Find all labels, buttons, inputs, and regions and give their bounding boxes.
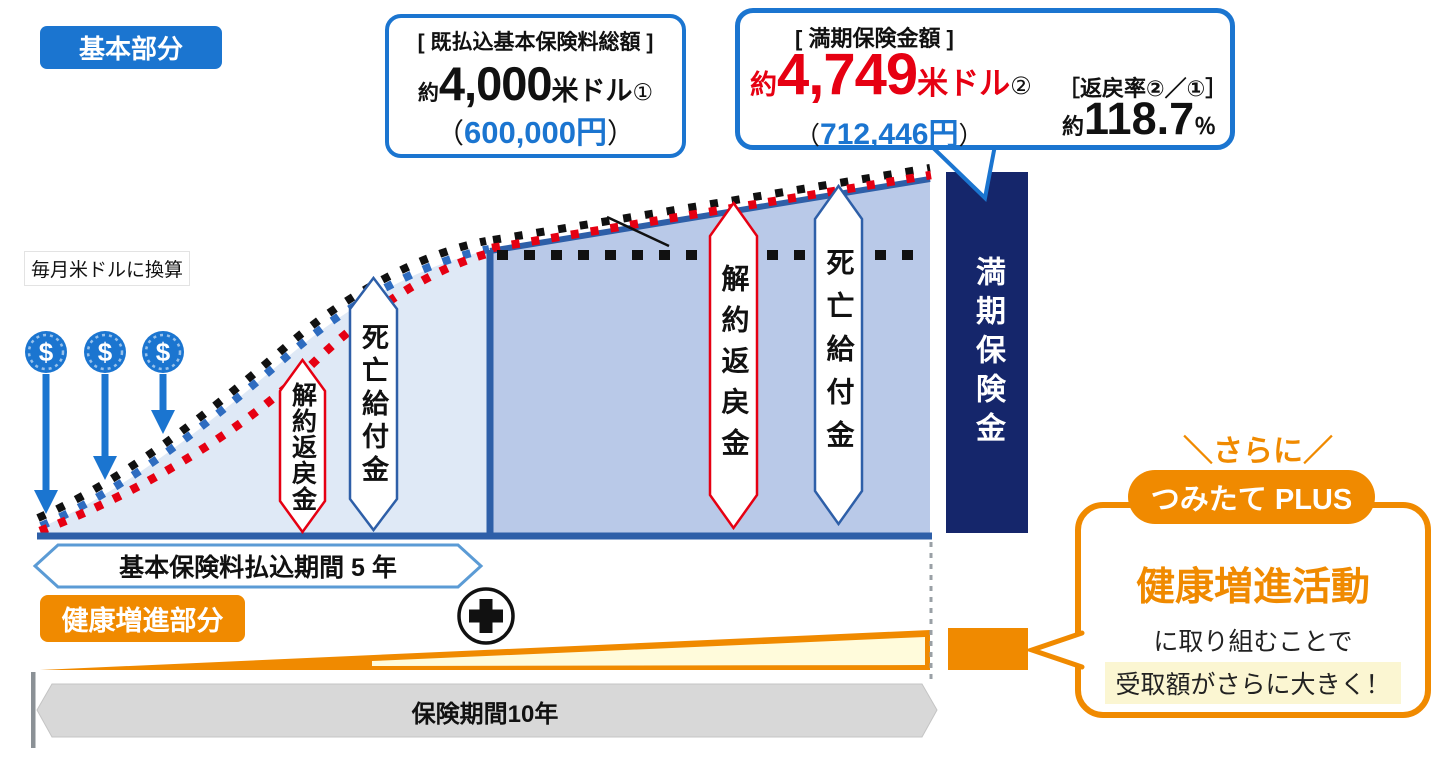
death-benefit-label-2: 死亡給付金 (815, 202, 862, 508)
maturity-mark: ② (1010, 72, 1032, 101)
death-benefit-label-1: 死亡給付金 (350, 292, 397, 518)
paren-close: ） (958, 116, 983, 152)
sarani-text: ＼さらに／ (1168, 428, 1348, 468)
maturity-yen: 712,446円 (820, 109, 958, 153)
health-activity-callout: 健康増進活動 に取り組むことで 受取額がさらに大きく！ (1075, 502, 1431, 718)
paid-unit: 米ドル (552, 69, 633, 108)
paren-open: （ (795, 116, 820, 152)
rate-value: 118.7 (1084, 93, 1194, 145)
maturity-approx: 約 (750, 63, 777, 102)
dollar-coin-icon: $ (25, 331, 67, 373)
maturity-unit: 米ドル (917, 58, 1010, 103)
rate-unit: ％ (1194, 109, 1216, 141)
paid-approx: 約 (418, 77, 439, 107)
paren-close: ） (607, 112, 635, 152)
maturity-amount-row: 約 4,749 米ドル ② (750, 41, 1032, 108)
basic-part-badge: 基本部分 (40, 26, 222, 69)
dollar-coin-icon: $ (142, 331, 184, 373)
paid-premium-amount-row: 約 4,000 米ドル ① (389, 56, 682, 111)
paid-amount: 4,000 (439, 56, 552, 111)
paren-open: （ (436, 112, 464, 152)
paid-premium-title: [ 既払込基本保険料総額 ] (389, 26, 682, 56)
maturity-yen-row: （ 712,446円 ） (795, 109, 983, 153)
insurance-term-label: 保険期間10年 (40, 688, 930, 734)
dollar-glyph: $ (98, 337, 113, 367)
dollar-coin-icon: $ (84, 331, 126, 373)
maturity-bar-label: 満期保険金 (946, 178, 1028, 528)
health-callout-tail (1022, 630, 1086, 674)
health-activity-line2: に取り組むことで (1081, 622, 1425, 658)
paid-mark: ① (633, 79, 654, 106)
paid-premium-yen-row: （ 600,000円 ） (389, 107, 682, 152)
return-rate-row: 約 118.7 ％ (1062, 93, 1216, 145)
maturity-amount: 4,749 (777, 41, 917, 108)
term-start-tick (31, 672, 36, 748)
health-activity-line3: 受取額がさらに大きく！ (1105, 662, 1400, 704)
insurance-diagram: $ $ $ (0, 0, 1454, 761)
tsumitate-plus-pill: つみたて PLUS (1128, 470, 1375, 524)
dollar-glyph: $ (156, 337, 171, 367)
paid-premium-callout: [ 既払込基本保険料総額 ] 約 4,000 米ドル ① （ 600,000円 … (385, 14, 686, 158)
payment-period-label: 基本保険料払込期間 5 年 (60, 549, 456, 583)
health-activity-headline: 健康増進活動 (1081, 556, 1425, 612)
health-bonus-block (948, 628, 1028, 670)
dollar-glyph: $ (39, 337, 54, 367)
surrender-value-label-1: 解約返戻金 (280, 372, 325, 522)
maturity-amount-callout: [ 満期保険金額 ] 約 4,749 米ドル ② （ 712,446円 ） ［返… (735, 8, 1235, 150)
surrender-value-label-2: 解約返戻金 (710, 222, 757, 510)
monthly-usd-note: 毎月米ドルに換算 (25, 252, 189, 285)
plus-icon (459, 589, 513, 643)
health-part-badge: 健康増進部分 (40, 595, 245, 642)
paid-yen: 600,000円 (464, 107, 607, 152)
rate-approx: 約 (1062, 109, 1084, 141)
